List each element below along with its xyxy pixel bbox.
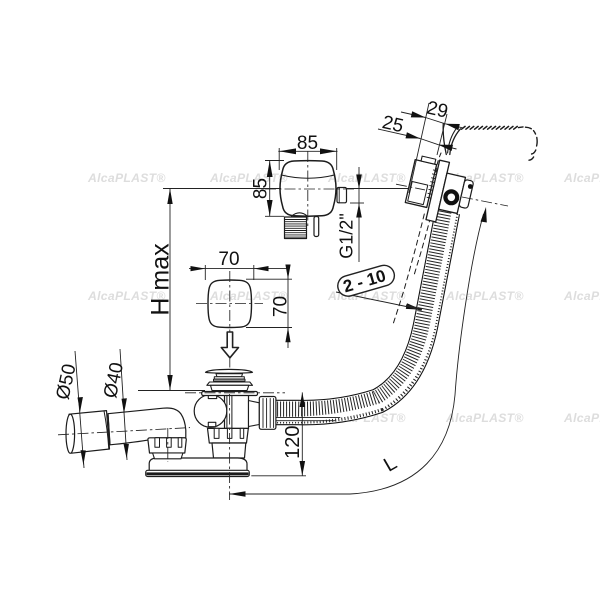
svg-text:AlcaPLAST®: AlcaPLAST® bbox=[563, 171, 600, 185]
svg-text:70: 70 bbox=[218, 249, 239, 270]
svg-text:AlcaPLAST®: AlcaPLAST® bbox=[563, 411, 600, 425]
svg-text:85: 85 bbox=[251, 178, 272, 199]
svg-text:AlcaPLAST®: AlcaPLAST® bbox=[209, 171, 288, 185]
svg-text:G1/2": G1/2" bbox=[337, 213, 357, 258]
svg-text:AlcaPLAST®: AlcaPLAST® bbox=[87, 171, 166, 185]
svg-text:H max: H max bbox=[147, 243, 175, 316]
svg-text:AlcaPLAST®: AlcaPLAST® bbox=[445, 411, 524, 425]
svg-text:120: 120 bbox=[282, 426, 304, 459]
svg-text:AlcaPLAST®: AlcaPLAST® bbox=[445, 289, 524, 303]
svg-text:70: 70 bbox=[271, 296, 292, 317]
svg-text:85: 85 bbox=[297, 133, 318, 154]
svg-text:AlcaPLAST®: AlcaPLAST® bbox=[327, 171, 406, 185]
svg-text:AlcaPLAST®: AlcaPLAST® bbox=[563, 289, 600, 303]
